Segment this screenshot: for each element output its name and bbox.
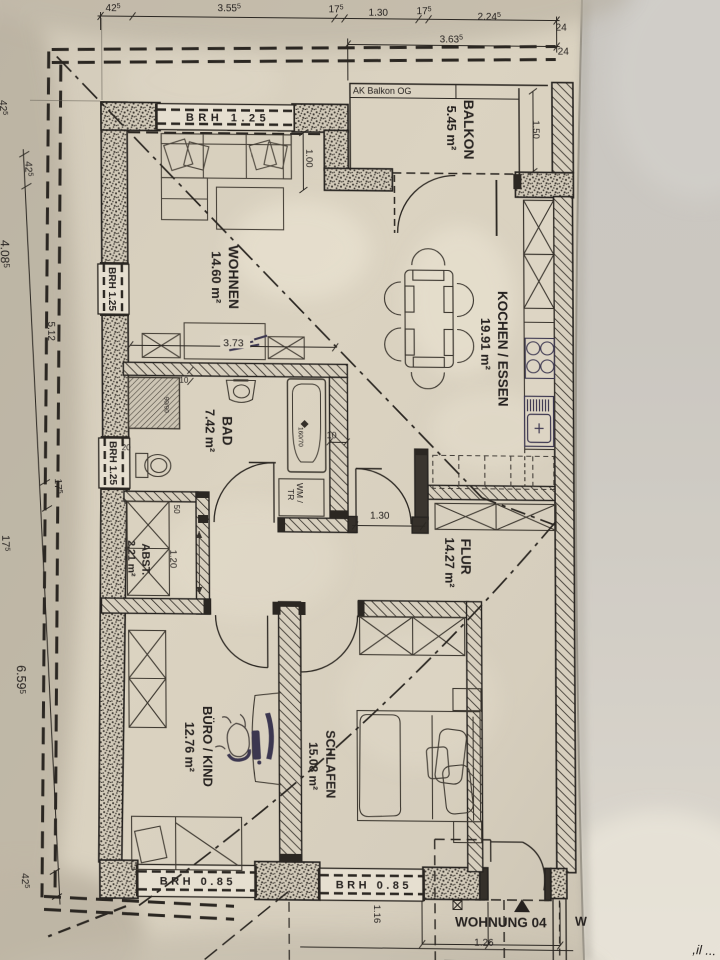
svg-text:ABST.: ABST. <box>139 543 151 575</box>
svg-text:BRH 1.25: BRH 1.25 <box>107 441 118 485</box>
svg-text:425: 425 <box>0 100 8 115</box>
svg-text:BRH 0.85: BRH 0.85 <box>336 879 412 892</box>
svg-text:2.21 m²: 2.21 m² <box>125 540 137 577</box>
svg-text:12.76 m²: 12.76 m² <box>182 722 196 772</box>
svg-text:BAD: BAD <box>220 416 235 446</box>
svg-text:BRH 1.25: BRH 1.25 <box>106 267 117 311</box>
svg-text:W: W <box>575 915 587 929</box>
svg-text:5.45 m²: 5.45 m² <box>444 105 459 151</box>
svg-text:AK Balkon OG: AK Balkon OG <box>353 86 412 97</box>
svg-text:20: 20 <box>122 443 131 452</box>
svg-text:,il ...: ,il ... <box>692 942 717 958</box>
svg-text:1.26: 1.26 <box>474 938 494 949</box>
svg-text:WOHNEN: WOHNEN <box>226 245 242 309</box>
svg-text:14.27 m²: 14.27 m² <box>442 537 456 587</box>
svg-text:SCHLAFEN: SCHLAFEN <box>323 730 337 798</box>
svg-text:1.30: 1.30 <box>370 511 390 522</box>
svg-text:24: 24 <box>556 23 568 34</box>
svg-text:1.50: 1.50 <box>530 120 541 139</box>
svg-text:14.60 m²: 14.60 m² <box>209 251 224 304</box>
svg-text:BÜRO / KIND: BÜRO / KIND <box>200 706 215 787</box>
svg-text:KOCHEN / ESSEN: KOCHEN / ESSEN <box>495 291 511 407</box>
svg-text:WOHNUNG 04: WOHNUNG 04 <box>455 915 547 931</box>
svg-text:50: 50 <box>172 505 181 515</box>
svg-text:1.30: 1.30 <box>369 8 389 19</box>
svg-text:1.20: 1.20 <box>167 550 178 569</box>
svg-text:24: 24 <box>558 47 570 58</box>
svg-text:5.12: 5.12 <box>45 321 56 341</box>
svg-text:10: 10 <box>179 376 188 385</box>
svg-text:1.00: 1.00 <box>303 149 314 168</box>
svg-text:160/70: 160/70 <box>297 427 304 447</box>
svg-text:7.42 m²: 7.42 m² <box>203 409 217 452</box>
svg-text:15.08 m²: 15.08 m² <box>306 742 320 790</box>
svg-text:BALKON: BALKON <box>461 100 477 160</box>
svg-text:19.91 m²: 19.91 m² <box>478 318 493 371</box>
svg-text:3.73: 3.73 <box>223 337 244 349</box>
svg-text:BRH 1.25: BRH 1.25 <box>186 112 270 125</box>
svg-text:90/90: 90/90 <box>162 397 169 414</box>
svg-text:FLUR: FLUR <box>458 539 473 575</box>
svg-text:TR: TR <box>286 489 296 500</box>
svg-text:1.16: 1.16 <box>371 905 382 924</box>
